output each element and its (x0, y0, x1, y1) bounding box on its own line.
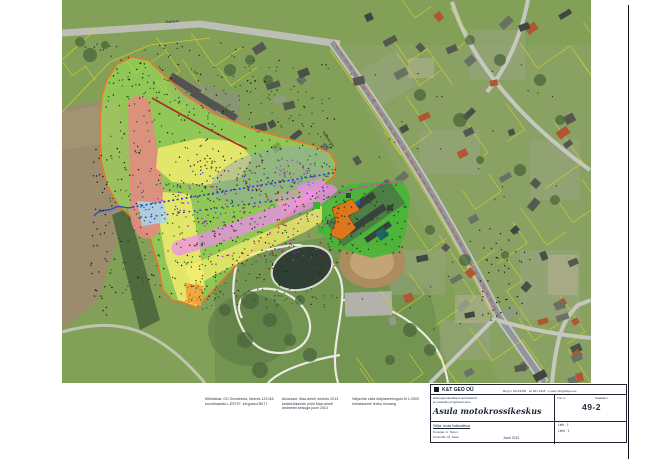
discipline-line-2: ja maastiku projekteerimine (433, 400, 551, 404)
drawing-number: 49-2 (555, 402, 628, 412)
title-block-header-row: K&T GEO OÜ Reg nr 10123456 · tel 601 234… (431, 385, 626, 395)
stage-label: Staadium (595, 396, 608, 400)
client-name: Tellija: Asula Vallavalitsus (433, 424, 470, 428)
note-line: mürataseme leviku hinnang (352, 402, 424, 407)
made-by: Koostas: A. Tamm (433, 430, 458, 434)
top-road-label: Jaama tn (165, 19, 180, 24)
note-line: koordinaadid L-EST97, kõrgused BK77 (205, 402, 277, 407)
title-block: K&T GEO OÜ Reg nr 10123456 · tel 601 234… (430, 384, 627, 443)
note-line: Aluskaart: Maa-ameti ortofoto 2013 (282, 397, 348, 402)
title-block-bottom-row: Tellija: Asula Vallavalitsus Koostas: A.… (431, 421, 626, 444)
company-contact-info: Reg nr 10123456 · tel 601 2345 · e-post … (503, 389, 577, 393)
note-line: Mõõdistas: OÜ Geodeesia, litsents 123 MA (205, 397, 277, 402)
note-line: andmetel seisuga juuni 2013 (282, 406, 348, 411)
blue-marker-icon (356, 201, 360, 205)
parking-lot (345, 291, 393, 317)
note-block-3: Väljavõte valla üldplaneeringust M 1:200… (352, 397, 424, 406)
drawing-sheet: Jaama tn Tallinna mnt Mõõdistas: OÜ Geod… (0, 0, 650, 459)
note-block-1: Mõõdistas: OÜ Geodeesia, litsents 123 MA… (205, 397, 277, 406)
sheet-border-line (628, 5, 629, 459)
note-block-2: Aluskaart: Maa-ameti ortofoto 2013 katas… (282, 397, 348, 411)
note-line: Väljavõte valla üldplaneeringust M 1:200… (352, 397, 424, 402)
company-name: K&T GEO OÜ (442, 387, 474, 393)
checked-by: Kontrollis: M. Kask (433, 435, 459, 439)
work-no-label: Töö nr (557, 396, 566, 400)
drawing-date: Juuni 2013 (503, 436, 519, 440)
company-logo-icon (434, 387, 439, 392)
project-title: Asula motokrossikeskus (433, 406, 551, 416)
